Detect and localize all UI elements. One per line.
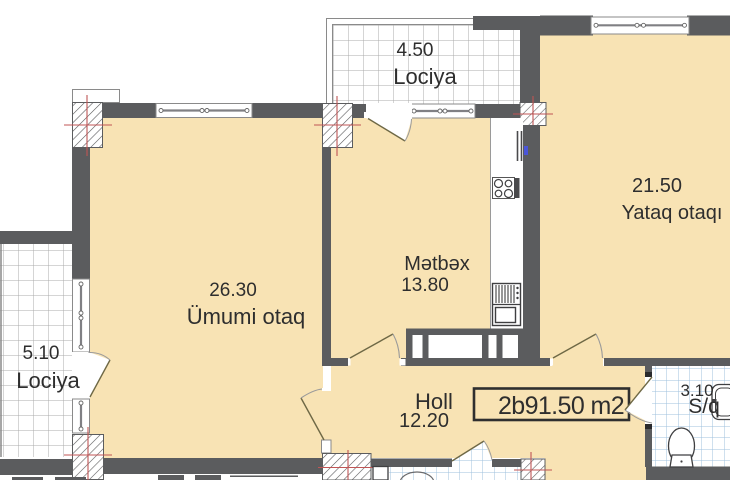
svg-text:21.50: 21.50 — [632, 175, 682, 197]
svg-text:Lociya: Lociya — [16, 368, 80, 393]
svg-text:Yataq otaqı: Yataq otaqı — [622, 202, 723, 224]
svg-text:4.50: 4.50 — [397, 40, 434, 61]
svg-text:13.80: 13.80 — [401, 275, 449, 296]
svg-text:5.10: 5.10 — [23, 343, 60, 364]
svg-text:Mətbəx: Mətbəx — [404, 253, 470, 275]
svg-text:12.20: 12.20 — [399, 410, 449, 432]
svg-text:Lociya: Lociya — [393, 64, 457, 89]
svg-text:S/q: S/q — [688, 395, 720, 418]
svg-text:26.30: 26.30 — [209, 280, 257, 301]
svg-text:2b91.50 m2: 2b91.50 m2 — [498, 392, 624, 420]
svg-text:Ümumi otaq: Ümumi otaq — [187, 304, 306, 329]
